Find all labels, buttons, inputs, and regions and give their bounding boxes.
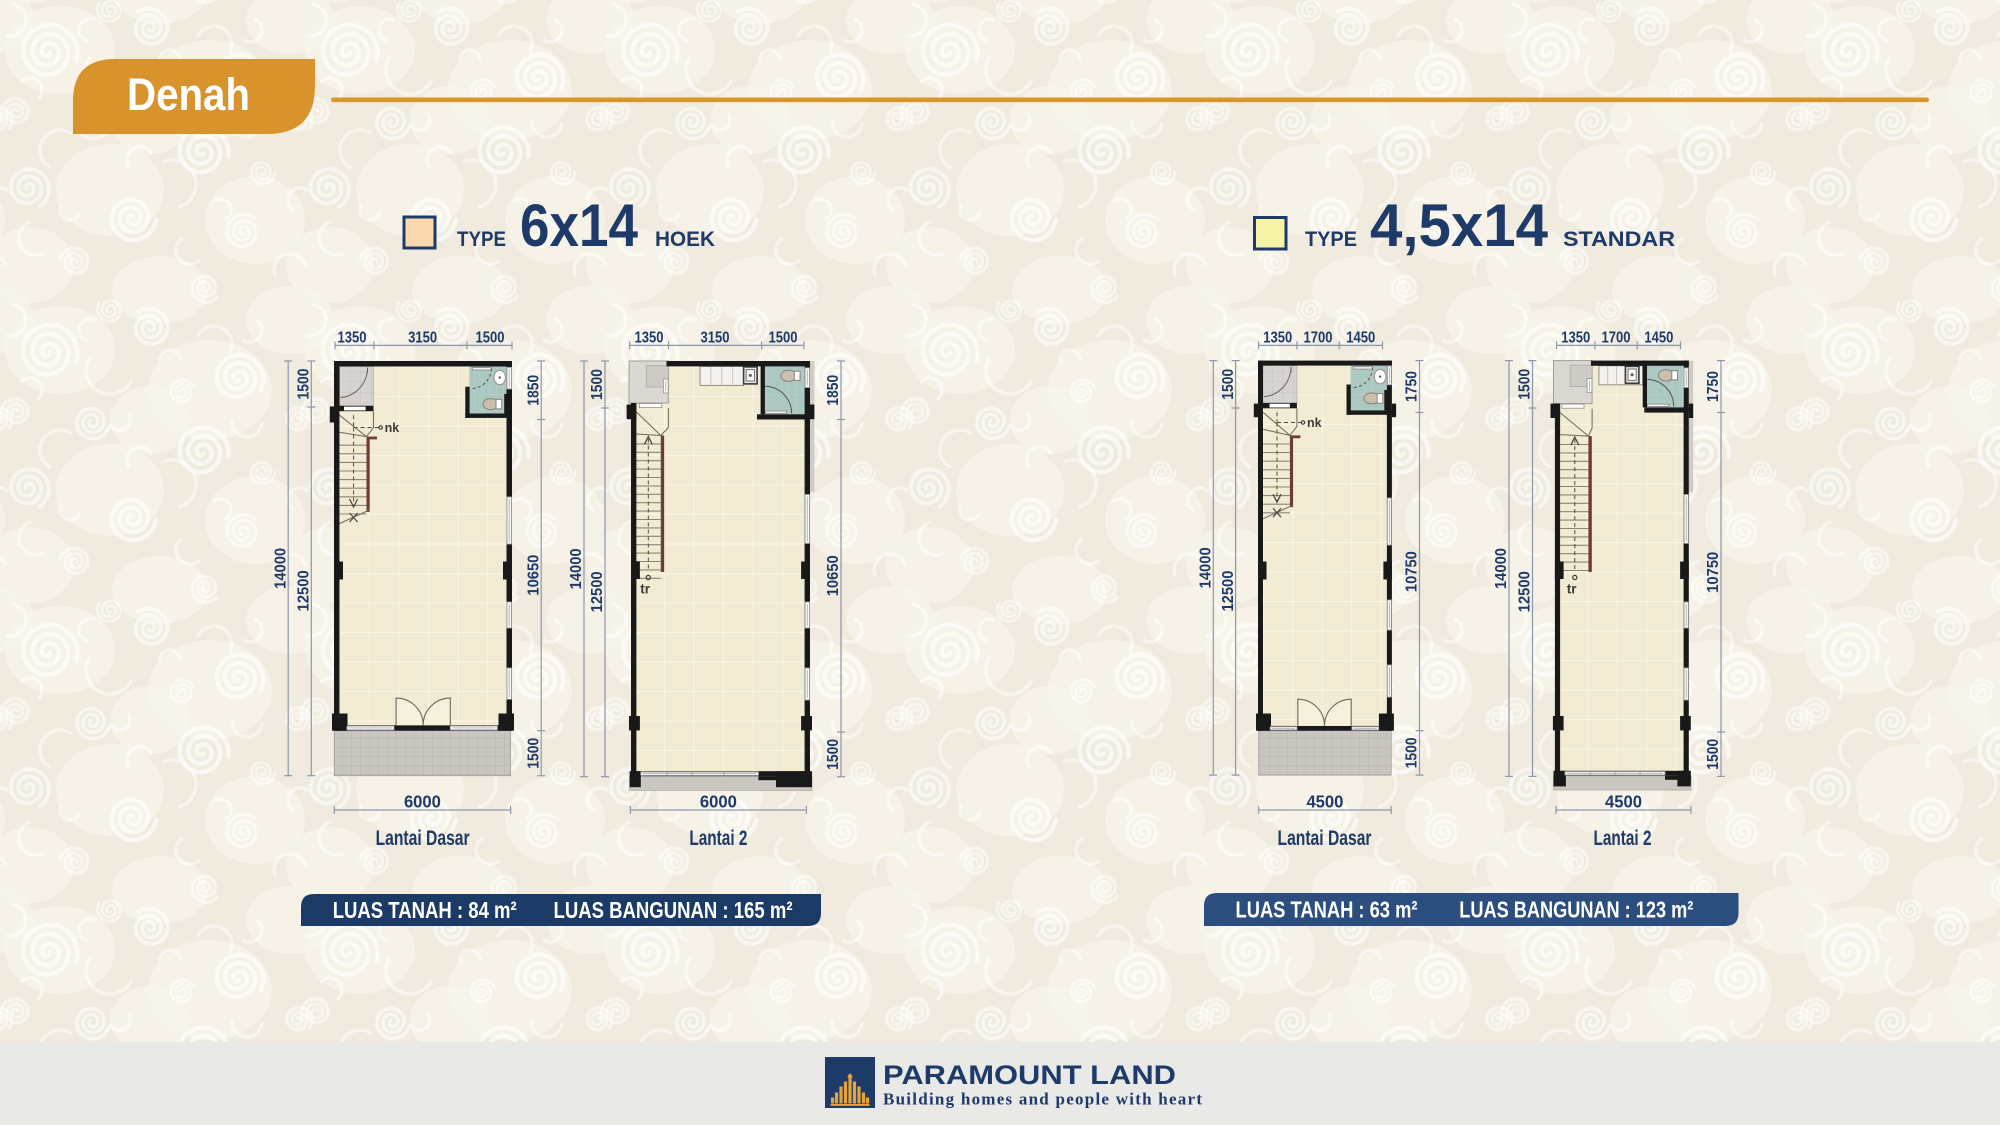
- svg-text:10750: 10750: [1404, 551, 1421, 592]
- svg-text:4,5x14: 4,5x14: [1370, 192, 1549, 259]
- svg-text:1500: 1500: [296, 368, 313, 399]
- svg-text:10650: 10650: [825, 555, 842, 596]
- svg-text:1350: 1350: [635, 330, 664, 347]
- svg-text:HOEK: HOEK: [655, 228, 715, 251]
- svg-text:1700: 1700: [1304, 330, 1333, 347]
- svg-text:1350: 1350: [338, 330, 367, 347]
- svg-text:tr: tr: [1567, 582, 1577, 597]
- svg-text:Lantai 2: Lantai 2: [1594, 827, 1652, 850]
- svg-text:1750: 1750: [1404, 371, 1421, 402]
- svg-text:1850: 1850: [825, 375, 842, 406]
- svg-text:1500: 1500: [1705, 739, 1722, 770]
- svg-text:1350: 1350: [1263, 330, 1292, 347]
- svg-text:14000: 14000: [1198, 547, 1215, 588]
- svg-text:12500: 12500: [589, 571, 606, 612]
- svg-text:14000: 14000: [568, 548, 585, 589]
- svg-text:nk: nk: [385, 421, 400, 435]
- svg-text:12500: 12500: [1220, 570, 1237, 611]
- svg-text:3150: 3150: [408, 330, 437, 347]
- svg-text:1750: 1750: [1705, 371, 1722, 402]
- svg-text:1500: 1500: [769, 330, 798, 347]
- svg-text:1350: 1350: [1561, 330, 1590, 347]
- svg-text:Lantai Dasar: Lantai Dasar: [376, 827, 470, 850]
- svg-text:10750: 10750: [1705, 552, 1722, 593]
- svg-text:14000: 14000: [1493, 548, 1510, 589]
- svg-text:Denah: Denah: [127, 69, 250, 120]
- svg-text:4500: 4500: [1605, 792, 1642, 812]
- svg-text:STANDAR: STANDAR: [1563, 228, 1675, 251]
- svg-text:6000: 6000: [700, 792, 737, 812]
- svg-text:LUAS BANGUNAN : 123 m²: LUAS BANGUNAN : 123 m²: [1459, 897, 1693, 923]
- svg-text:6x14: 6x14: [520, 192, 639, 259]
- svg-text:1700: 1700: [1602, 330, 1631, 347]
- svg-text:PARAMOUNT LAND: PARAMOUNT LAND: [883, 1060, 1176, 1090]
- svg-text:10650: 10650: [525, 555, 542, 596]
- svg-text:1450: 1450: [1346, 330, 1375, 347]
- svg-text:1850: 1850: [525, 375, 542, 406]
- svg-text:1450: 1450: [1644, 330, 1673, 347]
- svg-text:12500: 12500: [296, 570, 313, 611]
- svg-text:1500: 1500: [476, 330, 505, 347]
- svg-text:1500: 1500: [1220, 369, 1237, 400]
- svg-text:tr: tr: [640, 582, 650, 597]
- svg-text:1500: 1500: [589, 369, 606, 400]
- svg-text:LUAS TANAH : 63 m²: LUAS TANAH : 63 m²: [1236, 897, 1418, 923]
- svg-text:TYPE: TYPE: [1305, 228, 1357, 251]
- svg-text:nk: nk: [1307, 416, 1322, 430]
- svg-text:3150: 3150: [701, 330, 730, 347]
- svg-text:LUAS BANGUNAN : 165 m²: LUAS BANGUNAN : 165 m²: [554, 897, 793, 923]
- svg-text:14000: 14000: [272, 548, 289, 589]
- svg-text:4500: 4500: [1306, 792, 1343, 812]
- svg-text:1500: 1500: [1517, 369, 1534, 400]
- svg-text:LUAS TANAH : 84 m²: LUAS TANAH : 84 m²: [333, 897, 517, 923]
- svg-text:Building homes and people with: Building homes and people with heart: [883, 1090, 1202, 1109]
- svg-text:TYPE: TYPE: [457, 228, 506, 251]
- svg-text:Lantai Dasar: Lantai Dasar: [1278, 827, 1372, 850]
- svg-text:1500: 1500: [825, 739, 842, 770]
- svg-text:1500: 1500: [525, 738, 542, 769]
- svg-text:1500: 1500: [1404, 737, 1421, 768]
- svg-text:6000: 6000: [404, 792, 441, 812]
- svg-text:Lantai 2: Lantai 2: [689, 827, 747, 850]
- svg-text:12500: 12500: [1517, 571, 1534, 612]
